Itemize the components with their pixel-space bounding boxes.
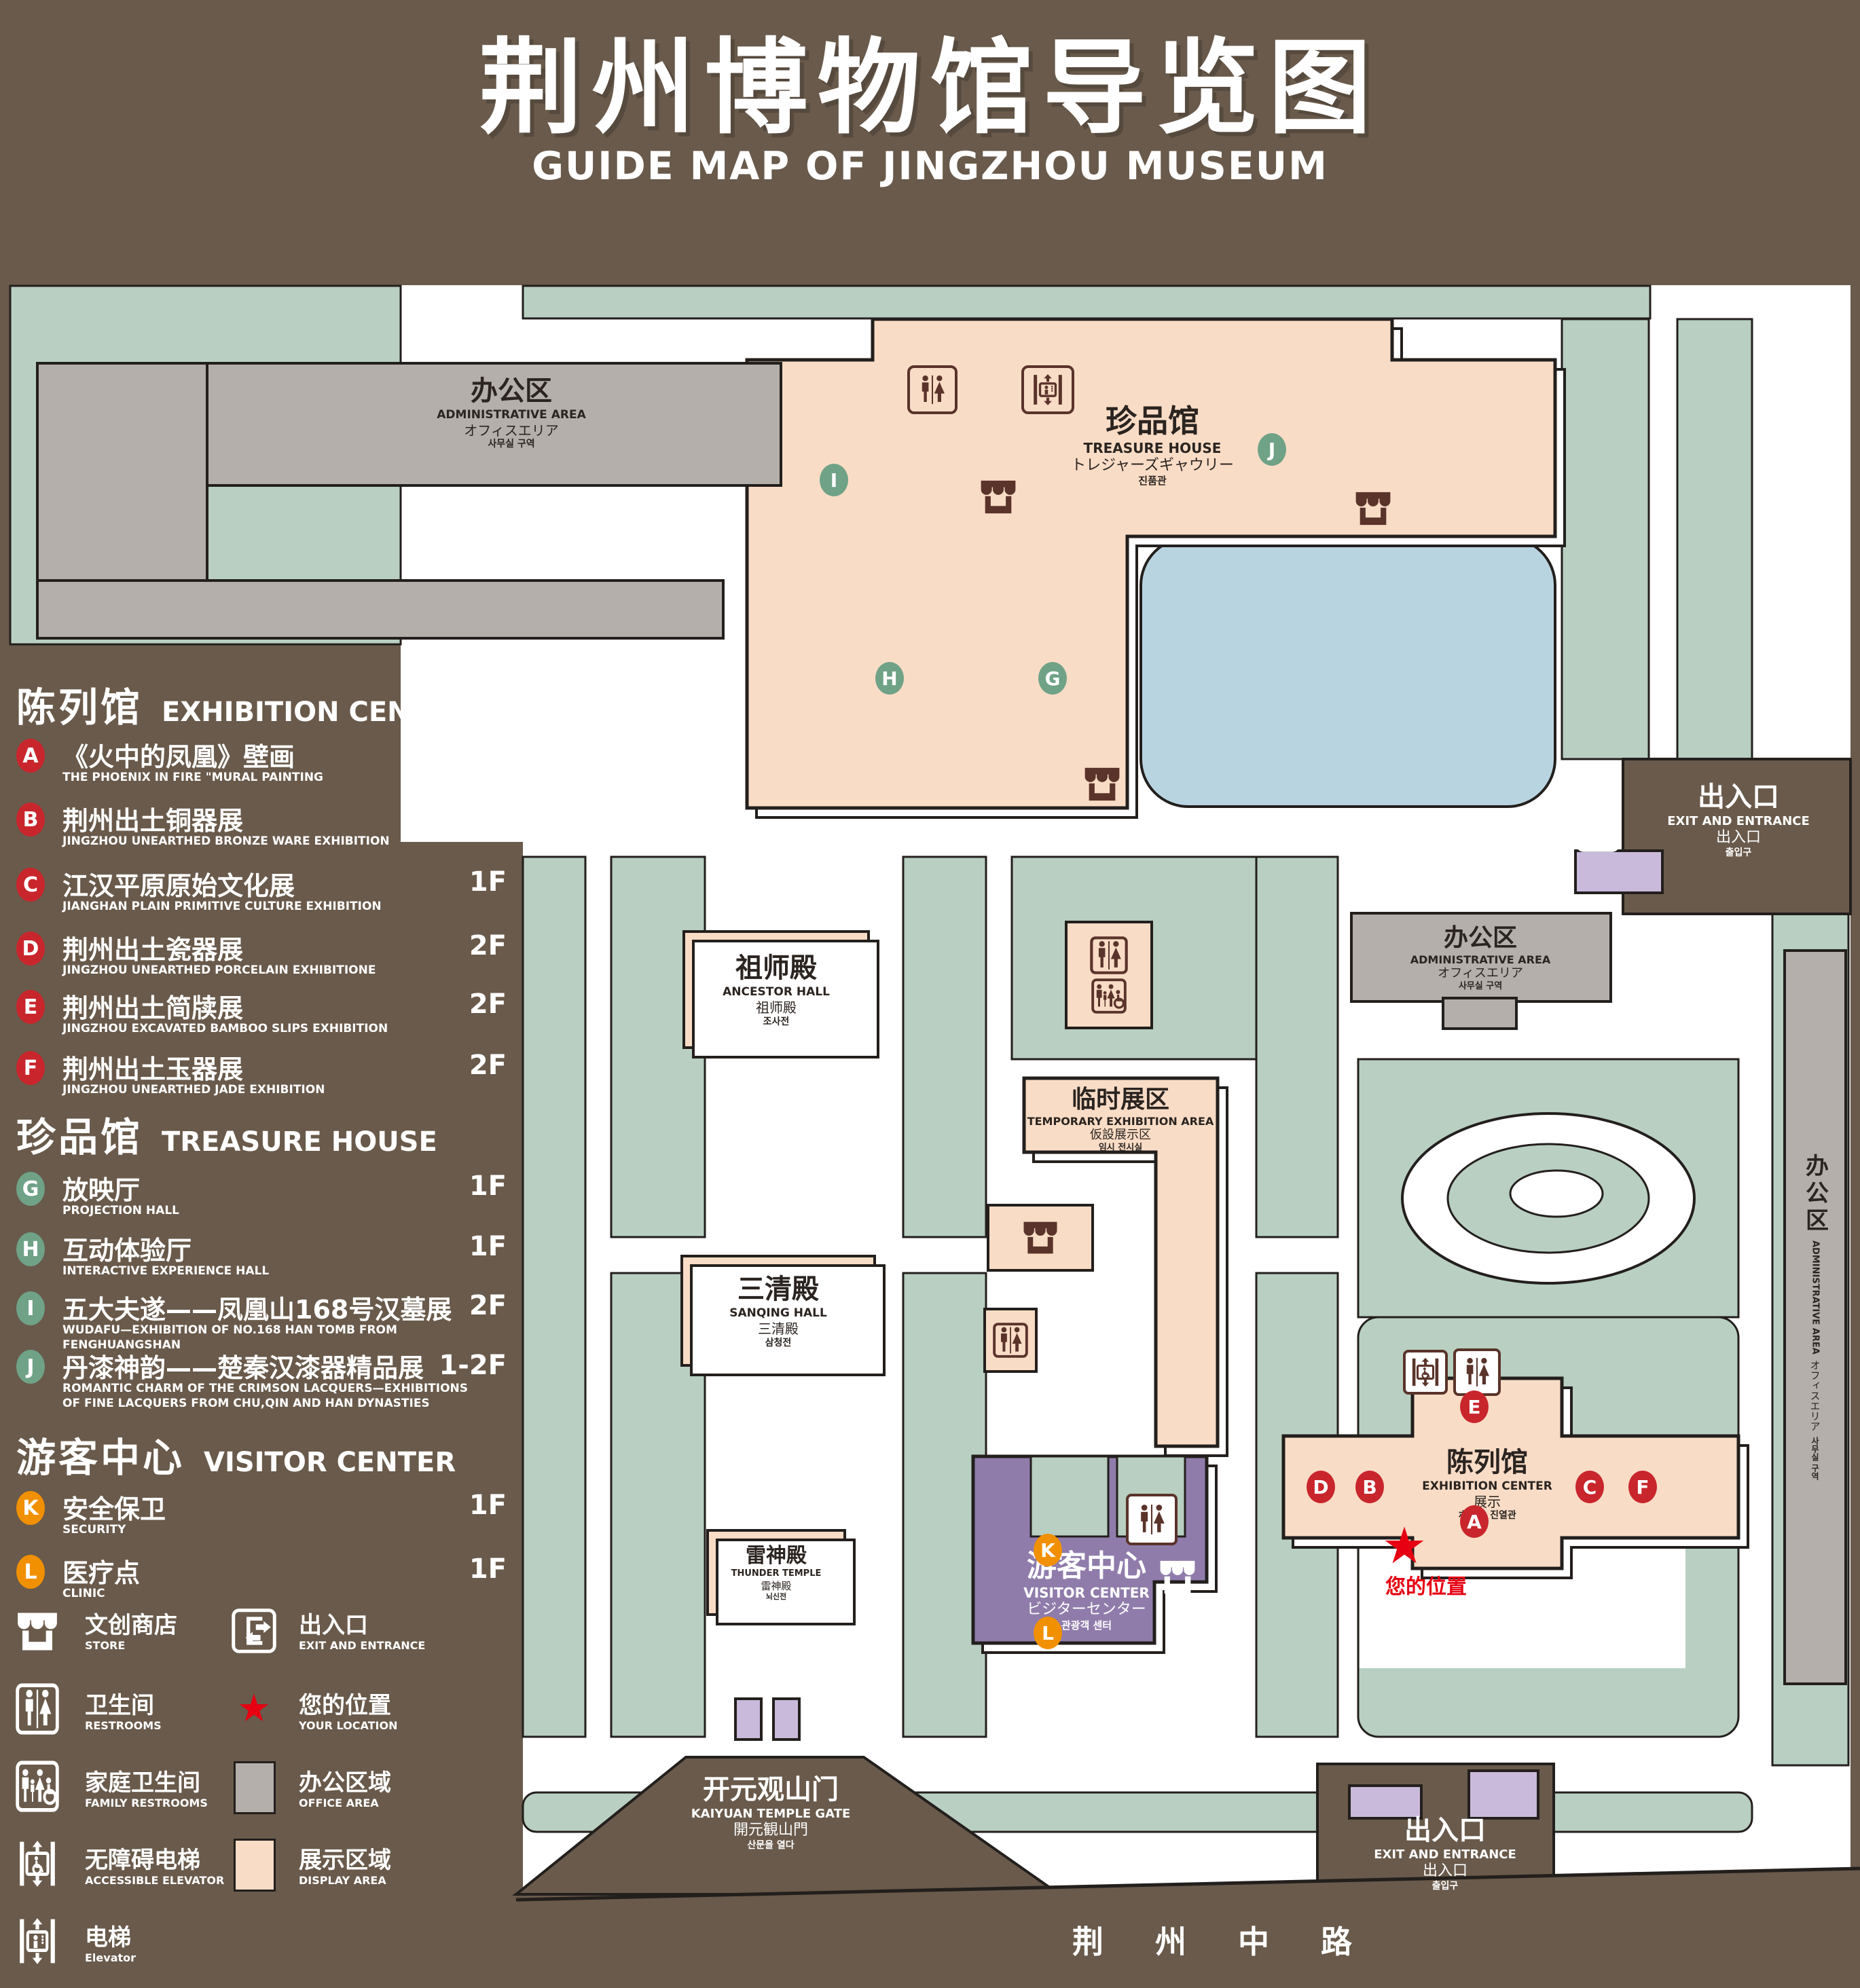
item-zh: 医疗点 xyxy=(62,1552,140,1589)
admin-tl-ko: 사무실 구역 xyxy=(437,439,585,450)
admin-tl-building xyxy=(37,581,723,638)
visitor-center-lawn-notch xyxy=(1031,1456,1108,1536)
admin-strip-ko: 사무실 구역 xyxy=(1810,1437,1821,1480)
admin-strip-ja: オフィスエリア xyxy=(1808,1360,1823,1431)
list-item-F: F 荆州出土玉器展 JINGZHOU UNEARTHED JADE EXHIBI… xyxy=(16,1051,507,1109)
marker-D: D xyxy=(1307,1471,1335,1503)
legend-your-location: ★ 您的位置 YOUR LOCATION xyxy=(231,1681,516,1749)
thunder-temple: 雷神殿 THUNDER TEMPLE 雷神殿 뇌신전 xyxy=(706,1529,846,1616)
badge-D: D xyxy=(16,932,45,965)
exit-bottom-ko: 출입구 xyxy=(1374,1881,1516,1892)
item-zh: 荆州出土简牍展 xyxy=(62,987,243,1025)
temporary-ko: 임시 전시실 xyxy=(1027,1143,1214,1154)
elevator-icon xyxy=(1021,365,1074,414)
item-en: INTERACTIVE EXPERIENCE HALL xyxy=(62,1264,477,1278)
store-icon xyxy=(1353,489,1393,528)
admin-tl-zh: 办公区 xyxy=(437,375,585,408)
list-item-J: J 丹漆神韵——楚秦汉漆器精品展 ROMANTIC CHARM OF THE C… xyxy=(16,1350,507,1408)
item-floor: 1F xyxy=(469,866,507,898)
admin-tl-en: ADMINISTRATIVE AREA xyxy=(437,408,585,422)
item-floor: 1F xyxy=(469,737,507,769)
lawn-right-col2 xyxy=(1677,319,1752,759)
item-floor: 2F xyxy=(469,1290,507,1321)
family-restrooms-icon xyxy=(15,1760,60,1813)
ancestor-en: ANCESTOR HALL xyxy=(723,985,830,999)
legend-en: DISPLAY AREA xyxy=(299,1874,386,1887)
marker-J: J xyxy=(1258,433,1286,466)
exit-top-en: EXIT AND ENTRANCE xyxy=(1667,814,1810,829)
item-floor: 1F xyxy=(469,801,507,832)
exhibition-en: EXHIBITION CENTER xyxy=(1422,1479,1552,1494)
item-en: ROMANTIC CHARM OF THE CRIMSON LACQUERS—E… xyxy=(62,1381,477,1411)
section-en: VISITOR CENTER xyxy=(204,1447,456,1478)
badge-C: C xyxy=(16,868,45,902)
admin-tl-label: 办公区 ADMINISTRATIVE AREA オフィスエリア 사무실 구역 xyxy=(437,375,585,450)
badge-G: G xyxy=(16,1172,45,1206)
marker-I: I xyxy=(820,464,848,496)
item-floor: 2F xyxy=(469,930,507,961)
restrooms-icon xyxy=(1090,936,1128,974)
item-zh: 荆州出土铜器展 xyxy=(62,800,243,837)
family-restrooms-icon xyxy=(1091,978,1127,1014)
legend-elevator: 电梯 Elevator xyxy=(15,1913,246,1981)
exit-top-ja: 出入口 xyxy=(1667,829,1810,847)
item-floor: 2F xyxy=(469,989,507,1020)
legend-zh: 家庭卫生间 xyxy=(85,1764,200,1797)
item-en: PROJECTION HALL xyxy=(62,1203,477,1218)
store-icon xyxy=(979,477,1018,517)
badge-I: I xyxy=(16,1291,45,1325)
gate-ja: 開元観山門 xyxy=(691,1822,851,1840)
store-icon xyxy=(15,1609,60,1654)
treasure-zh: 珍品馆 xyxy=(1071,402,1234,440)
list-item-E: E 荆州出土简牍展 JINGZHOU EXCAVATED BAMBOO SLIP… xyxy=(16,990,507,1048)
gate-block-bottom xyxy=(1469,1771,1538,1818)
legend-exit: 出入口 EXIT AND ENTRANCE xyxy=(231,1604,516,1672)
marker-G: G xyxy=(1038,662,1067,695)
item-floor: 1-2F xyxy=(439,1350,507,1381)
badge-H: H xyxy=(16,1232,45,1266)
item-zh: 荆州出土瓷器展 xyxy=(62,929,243,966)
marker-F: F xyxy=(1628,1471,1657,1503)
list-item-H: H 互动体验厅 INTERACTIVE EXPERIENCE HALL 1F xyxy=(16,1232,507,1291)
temporary-area-label: 临时展区 TEMPORARY EXHIBITION AREA 仮設展示区 임시 … xyxy=(1027,1085,1214,1154)
legend-display-area: 展示区域 DISPLAY AREA xyxy=(231,1836,516,1904)
lawn xyxy=(1256,857,1338,1237)
item-zh: 江汉平原原始文化展 xyxy=(62,865,295,902)
exit-top-label: 出入口 EXIT AND ENTRANCE 出入口 출입구 xyxy=(1667,781,1810,859)
gate-en: KAIYUAN TEMPLE GATE xyxy=(691,1807,851,1822)
section-en: EXHIBITION CENTER xyxy=(162,697,468,728)
section-header-exhibition-center: 陈列馆 EXHIBITION CENTER xyxy=(16,676,468,733)
gate-zh: 开元观山门 xyxy=(691,1773,851,1807)
accessible-elevator-icon xyxy=(15,1837,60,1890)
visitor-en: VISITOR CENTER xyxy=(1023,1585,1150,1601)
legend-family-restrooms: 家庭卫生间 FAMILY RESTROOMS xyxy=(15,1759,246,1826)
restrooms-kiosk xyxy=(983,1308,1038,1373)
treasure-house-label: 珍品馆 TREASURE HOUSE トレジャーズギャウリー 진품관 xyxy=(1071,402,1234,487)
legend-en: Elevator xyxy=(85,1951,136,1964)
temporary-ja: 仮設展示区 xyxy=(1027,1128,1214,1143)
legend-office-area: 办公区域 OFFICE AREA xyxy=(231,1759,516,1826)
display-area-swatch xyxy=(234,1839,276,1892)
legend-zh: 电梯 xyxy=(85,1919,131,1952)
marker-B: B xyxy=(1355,1471,1384,1503)
badge-J: J xyxy=(16,1350,45,1384)
gate-block-top-right xyxy=(1575,851,1662,893)
section-header-treasure-house: 珍品馆 TREASURE HOUSE xyxy=(16,1105,437,1162)
gate-pillar xyxy=(773,1699,799,1739)
garden-center xyxy=(1510,1171,1603,1217)
legend-zh: 您的位置 xyxy=(299,1687,391,1720)
legend-en: RESTROOMS xyxy=(85,1719,162,1732)
exit-bottom-zh: 出入口 xyxy=(1374,1814,1516,1847)
exit-icon xyxy=(231,1608,277,1654)
gate-label: 开元观山门 KAIYUAN TEMPLE GATE 開元観山門 산문을 열다 xyxy=(691,1773,851,1852)
item-zh: 互动体验厅 xyxy=(62,1230,192,1267)
thunder-en: THUNDER TEMPLE xyxy=(731,1568,822,1579)
gate-pillar xyxy=(735,1699,761,1739)
item-en: JINGZHOU UNEARTHED JADE EXHIBITION xyxy=(62,1082,477,1097)
exit-bottom-label: 出入口 EXIT AND ENTRANCE 出入口 출입구 xyxy=(1374,1814,1516,1892)
marker-A: A xyxy=(1460,1505,1489,1538)
restrooms-family-block xyxy=(1065,921,1153,1029)
legend-zh: 办公区域 xyxy=(299,1764,391,1797)
badge-L: L xyxy=(16,1555,45,1589)
legend-en: EXIT AND ENTRANCE xyxy=(299,1639,425,1652)
legend-accessible-elevator: 无障碍电梯 ACCESSIBLE ELEVATOR xyxy=(15,1836,246,1904)
item-zh: 放映厅 xyxy=(62,1169,140,1207)
temporary-zh: 临时展区 xyxy=(1027,1085,1214,1115)
restrooms-icon xyxy=(15,1682,60,1735)
legend-en: FAMILY RESTROOMS xyxy=(85,1797,208,1809)
list-item-K: K 安全保卫 SECURITY 1F xyxy=(16,1491,507,1549)
store-icon xyxy=(1082,765,1122,804)
legend-en: ACCESSIBLE ELEVATOR xyxy=(85,1874,224,1887)
item-en: JINGZHOU UNEARTHED BRONZE WARE EXHIBITIO… xyxy=(62,834,477,849)
section-zh: 游客中心 xyxy=(16,1426,185,1483)
admin-strip-zh: 办公区 xyxy=(1799,1154,1832,1235)
list-item-D: D 荆州出土瓷器展 JINGZHOU UNEARTHED PORCELAIN E… xyxy=(16,932,507,990)
legend-zh: 卫生间 xyxy=(85,1687,154,1720)
item-en: THE PHOENIX IN FIRE "MURAL PAINTING xyxy=(62,770,477,785)
item-zh: 安全保卫 xyxy=(62,1488,166,1526)
restrooms-icon xyxy=(1126,1494,1178,1545)
jingzhou-museum-guide-map: { "title": {"zh": "荆州博物馆导览图", "en": "GUI… xyxy=(0,0,1860,1988)
legend-en: OFFICE AREA xyxy=(299,1797,379,1809)
sanqing-en: SANQING HALL xyxy=(729,1306,827,1321)
section-header-visitor-center: 游客中心 VISITOR CENTER xyxy=(16,1426,456,1483)
gate-ko: 산문을 열다 xyxy=(691,1840,851,1852)
pond xyxy=(1141,538,1555,807)
item-zh: 荆州出土玉器展 xyxy=(62,1048,243,1086)
sanqing-hall-label: 三清殿 SANQING HALL 三清殿 삼청전 xyxy=(729,1272,827,1350)
legend-store: 文创商店 STORE xyxy=(15,1604,246,1672)
item-floor: 1F xyxy=(469,1171,507,1202)
item-floor: 2F xyxy=(469,1050,507,1081)
exit-top-ko: 출입구 xyxy=(1667,847,1810,859)
gate-block-bottom xyxy=(1349,1786,1421,1818)
lawn-right-col xyxy=(1562,319,1649,759)
badge-B: B xyxy=(16,803,45,836)
item-en: SECURITY xyxy=(62,1522,477,1537)
exit-bottom-en: EXIT AND ENTRANCE xyxy=(1374,1847,1516,1862)
lawn-top-strip xyxy=(523,286,1650,318)
admin-right-building xyxy=(1443,998,1516,1029)
store-kiosk xyxy=(987,1204,1094,1272)
legend-zh: 无障碍电梯 xyxy=(85,1841,200,1875)
sanqing-ko: 삼청전 xyxy=(729,1338,827,1350)
lawn xyxy=(903,857,986,1237)
list-item-C: C 江汉平原原始文化展 JIANGHAN PLAIN PRIMITIVE CUL… xyxy=(16,868,507,926)
exhibition-center-label: 陈列馆 EXHIBITION CENTER 展示 ホール 진열관 xyxy=(1422,1446,1552,1522)
legend-en: STORE xyxy=(85,1639,125,1652)
admin-tl-ja: オフィスエリア xyxy=(437,422,585,439)
thunder-temple-label: 雷神殿 THUNDER TEMPLE 雷神殿 뇌신전 xyxy=(731,1543,822,1602)
list-item-A: A 《火中的凤凰》壁画 THE PHOENIX IN FIRE "MURAL P… xyxy=(16,739,507,797)
ancestor-ko: 조사전 xyxy=(723,1016,830,1029)
item-en: JINGZHOU EXCAVATED BAMBOO SLIPS EXHIBITI… xyxy=(62,1021,477,1036)
legend-restrooms: 卫生间 RESTROOMS xyxy=(15,1681,246,1749)
ancestor-hall-label: 祖师殿 ANCESTOR HALL 祖师殿 조사전 xyxy=(723,951,830,1029)
legend-en: YOUR LOCATION xyxy=(299,1719,397,1732)
item-floor: 1F xyxy=(469,1553,507,1585)
treasure-ko: 진품관 xyxy=(1071,475,1234,487)
exit-bottom-ja: 出入口 xyxy=(1374,1862,1516,1881)
road-name: 荆 州 中 路 xyxy=(985,1917,1460,1962)
ancestor-ja: 祖师殿 xyxy=(723,999,830,1016)
treasure-ja: トレジャーズギャウリー xyxy=(1071,457,1234,475)
badge-E: E xyxy=(16,990,45,1024)
list-item-G: G 放映厅 PROJECTION HALL 1F xyxy=(16,1172,507,1230)
item-zh: 丹漆神韵——楚秦汉漆器精品展 xyxy=(62,1347,424,1384)
restrooms-icon xyxy=(993,1323,1028,1358)
list-item-I: I 五大夫遂——凤凰山168号汉墓展 WUDAFU—EXHIBITION OF … xyxy=(16,1291,507,1350)
your-location-star: ★ xyxy=(231,1682,277,1735)
legend-zh: 展示区域 xyxy=(299,1841,391,1875)
admin-r-ja: オフィスエリア xyxy=(1410,966,1551,981)
sanqing-hall: 三清殿 SANQING HALL 三清殿 삼청전 xyxy=(680,1255,876,1367)
list-item-B: B 荆州出土铜器展 JINGZHOU UNEARTHED BRONZE WARE… xyxy=(16,803,507,861)
item-floor: 1F xyxy=(469,1231,507,1262)
section-zh: 珍品馆 xyxy=(16,1105,143,1162)
admin-strip-label: 办公区 ADMINISTRATIVE AREA オフィスエリア 사무실 구역 xyxy=(1785,971,1846,1663)
exit-icon xyxy=(1575,807,1620,854)
item-floor: 1F xyxy=(469,1490,507,1521)
visitor-ja: ビジターセンター xyxy=(1023,1601,1150,1619)
marker-C: C xyxy=(1575,1471,1604,1503)
accessible-elevator-icon xyxy=(1403,1350,1448,1395)
ancestor-zh: 祖师殿 xyxy=(723,951,830,985)
store-icon xyxy=(1021,1219,1059,1257)
thunder-zh: 雷神殿 xyxy=(731,1543,822,1569)
item-zh: 五大夫遂——凤凰山168号汉墓展 xyxy=(62,1289,452,1326)
sanqing-zh: 三清殿 xyxy=(729,1272,827,1306)
badge-F: F xyxy=(16,1051,45,1085)
treasure-en: TREASURE HOUSE xyxy=(1071,440,1234,456)
admin-r-ko: 사무실 구역 xyxy=(1410,981,1551,992)
exhibition-ja: 展示 xyxy=(1422,1494,1552,1510)
store-icon xyxy=(1158,1556,1197,1598)
legend-zh: 文创商店 xyxy=(85,1606,177,1640)
your-location-label: 您的位置 xyxy=(1385,1570,1467,1600)
marker-E: E xyxy=(1460,1391,1489,1423)
office-area-swatch xyxy=(234,1761,276,1814)
sanqing-ja: 三清殿 xyxy=(729,1321,827,1338)
admin-right-label: 办公区 ADMINISTRATIVE AREA オフィスエリア 사무실 구역 xyxy=(1410,923,1551,992)
exit-top-zh: 出入口 xyxy=(1667,781,1810,814)
marker-K: K xyxy=(1034,1534,1062,1566)
thunder-ja: 雷神殿 xyxy=(731,1580,822,1593)
lawn-left-edge xyxy=(523,857,585,1737)
item-en: JINGZHOU UNEARTHED PORCELAIN EXHIBITIONE xyxy=(62,963,477,978)
thunder-ko: 뇌신전 xyxy=(731,1592,822,1602)
item-zh: 《火中的凤凰》壁画 xyxy=(62,736,295,773)
admin-strip-en: ADMINISTRATIVE AREA xyxy=(1810,1240,1821,1355)
exhibition-zh: 陈列馆 xyxy=(1422,1446,1552,1479)
section-en: TREASURE HOUSE xyxy=(162,1126,437,1158)
item-en: JIANGHAN PLAIN PRIMITIVE CULTURE EXHIBIT… xyxy=(62,899,477,914)
legend-zh: 出入口 xyxy=(299,1606,368,1640)
ancestor-hall: 祖师殿 ANCESTOR HALL 祖师殿 조사전 xyxy=(682,930,870,1049)
restrooms-icon xyxy=(1453,1348,1501,1396)
badge-K: K xyxy=(16,1491,45,1525)
temporary-en: TEMPORARY EXHIBITION AREA xyxy=(1027,1115,1214,1128)
marker-L: L xyxy=(1034,1617,1062,1649)
item-en: CLINIC xyxy=(62,1586,477,1601)
elevator-icon xyxy=(15,1915,60,1968)
marker-H: H xyxy=(875,662,904,695)
admin-r-en: ADMINISTRATIVE AREA xyxy=(1410,953,1551,967)
badge-A: A xyxy=(16,739,45,773)
admin-r-zh: 办公区 xyxy=(1410,923,1551,953)
your-location-star: ★ xyxy=(1382,1521,1427,1571)
restrooms-icon xyxy=(907,365,958,414)
section-zh: 陈列馆 xyxy=(16,676,143,733)
